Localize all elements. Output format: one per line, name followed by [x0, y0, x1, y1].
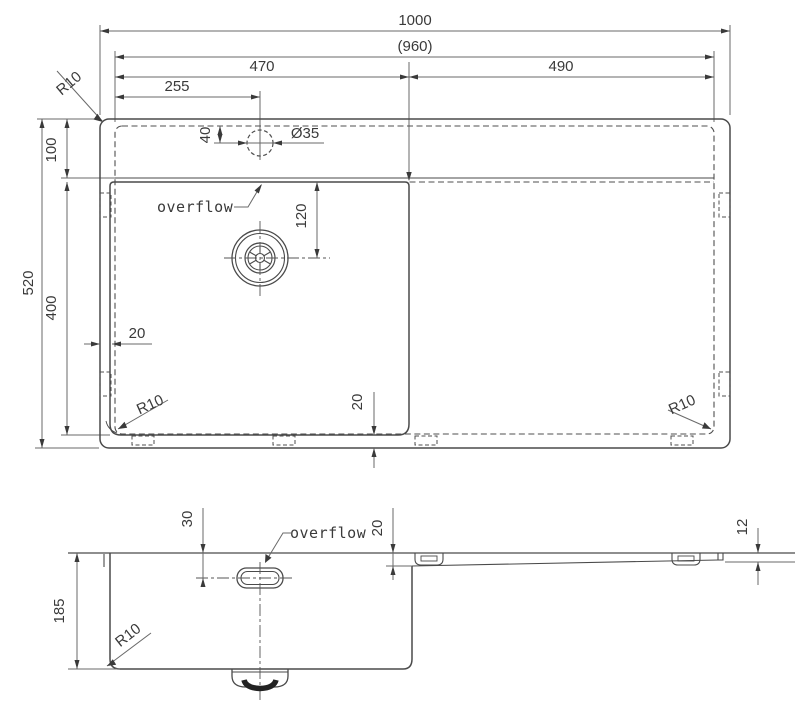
dim-label-radius-top-left: R10: [53, 68, 85, 99]
radius-callout-side: R10: [107, 620, 151, 666]
dim-label-overall-depth: 520: [20, 270, 37, 295]
dim-label-radius-bowl: R10: [134, 392, 166, 419]
mounting-clip: [132, 436, 154, 445]
dim-label-overflow-below-rim: 30: [179, 511, 196, 528]
tap-hole: Ø35: [214, 125, 324, 156]
dim-label-drainboard-width: 490: [548, 58, 573, 75]
dim-label-tap-hole-inset: 40: [197, 127, 214, 144]
right-end-step: [718, 553, 723, 560]
sink-outline: [100, 119, 730, 448]
mounting-clip: [415, 436, 437, 445]
radius-callout-drainboard-corner: R10: [666, 392, 711, 429]
dim-label-tap-hole-offset: 255: [164, 78, 189, 95]
overflow-hole-side: [196, 568, 293, 588]
mounting-clip: [719, 193, 730, 217]
overflow-annotation-top: overflow: [157, 184, 262, 216]
dim-rim-left: 20: [84, 325, 152, 347]
dim-label-bowl-depth: 400: [43, 295, 60, 320]
dim-label-tap-hole-diameter: Ø35: [291, 125, 319, 142]
mounting-clip-side: [415, 553, 443, 565]
dim-overall-depth: 520: [20, 119, 45, 448]
dim-label-drop-at-bowl: 20: [369, 520, 386, 537]
extension-lines: [35, 25, 730, 448]
dim-label-rim-left: 20: [129, 325, 146, 342]
dim-label-deck-depth: 100: [43, 137, 60, 162]
top-view: 1000 (960) 470 490 255: [20, 12, 730, 468]
bowl-section: [110, 553, 412, 669]
dim-drainboard-width: 490: [409, 58, 714, 80]
radius-callout-top-left: R10: [53, 68, 103, 122]
sink-outer-edge: [100, 119, 730, 448]
sink-underside-hidden-edge: [115, 126, 714, 434]
sink-technical-drawing: 1000 (960) 470 490 255: [0, 0, 800, 713]
dim-rim-bottom: 20: [349, 392, 377, 468]
dim-tap-hole-offset: 255: [115, 78, 260, 100]
dim-bowl-height: 185: [51, 553, 80, 669]
dim-label-inner-width: (960): [397, 38, 432, 55]
dim-label-drop-at-end: 12: [734, 519, 751, 536]
side-view: 185 30 20 12 R10: [51, 508, 795, 700]
dim-deck-depth: 100: [43, 119, 70, 178]
dim-label-overall-width: 1000: [398, 12, 431, 29]
mounting-clip-side: [672, 553, 700, 565]
dim-drop-at-bowl: 20: [369, 508, 396, 580]
dim-drop-at-end: 12: [734, 519, 761, 585]
dim-inner-width: (960): [115, 38, 714, 60]
dim-label-rim-bottom: 20: [349, 394, 366, 411]
mounting-clip: [671, 436, 693, 445]
dim-bowl-width: 470: [115, 58, 409, 80]
mounting-clip: [273, 436, 295, 445]
overflow-annotation-side: overflow: [265, 524, 367, 563]
technical-drawing-page: 1000 (960) 470 490 255: [0, 0, 800, 713]
mounting-clips: [100, 193, 730, 445]
dim-label-drain-offset: 120: [293, 203, 310, 228]
dim-label-radius-drainboard: R10: [666, 392, 698, 419]
side-outline: [68, 553, 795, 669]
overflow-label-side: overflow: [290, 524, 367, 542]
dim-drain-offset: 120: [293, 182, 320, 258]
dim-label-radius-side: R10: [112, 620, 144, 650]
overflow-label-top: overflow: [157, 198, 234, 216]
drain-assembly: [224, 221, 330, 296]
dim-tap-hole-inset: 40: [197, 126, 223, 143]
dim-overall-width: 1000: [100, 12, 730, 34]
dim-bowl-depth: 400: [43, 182, 70, 435]
dim-overflow-below-rim: 30: [179, 508, 206, 587]
dim-label-bowl-height: 185: [51, 598, 68, 623]
dim-label-bowl-width: 470: [249, 58, 274, 75]
mounting-clip: [719, 372, 730, 396]
